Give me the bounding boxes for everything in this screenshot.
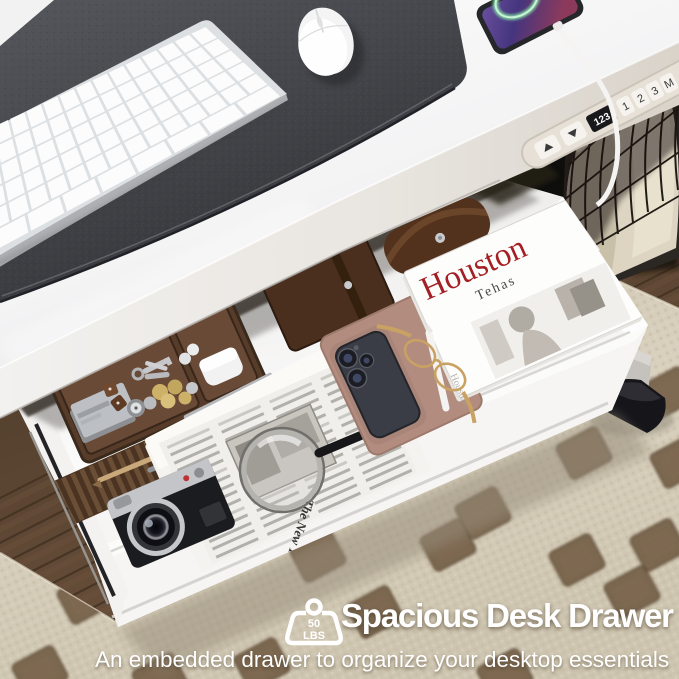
- svg-text:An embedded drawer to organize: An embedded drawer to organize your desk…: [95, 647, 669, 672]
- svg-text:50: 50: [308, 618, 320, 630]
- svg-text:Spacious Desk Drawer: Spacious Desk Drawer: [341, 597, 674, 634]
- svg-text:LBS: LBS: [303, 630, 325, 642]
